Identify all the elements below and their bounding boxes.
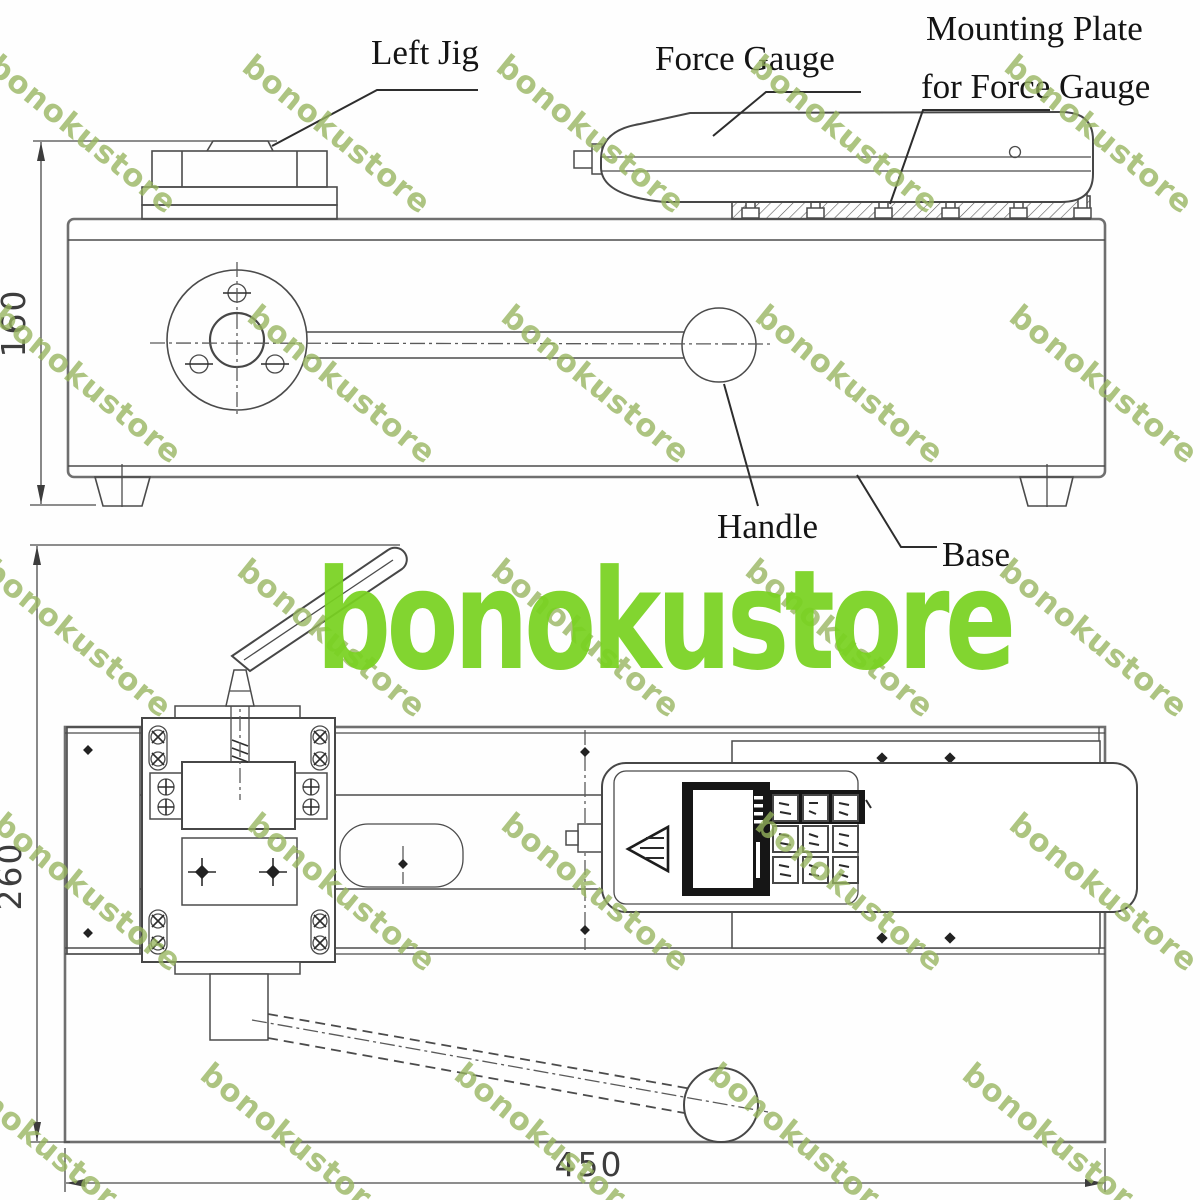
dimension-height-value: 160 <box>0 289 33 358</box>
plan-view: 260 450 <box>0 545 1137 1192</box>
force-gauge-side <box>574 112 1093 202</box>
carriage-lower-plate <box>182 838 297 905</box>
handle-ball-plan <box>684 1068 758 1142</box>
side-view: 160 Left Jig Force Gauge Mounting Plate … <box>0 9 1150 574</box>
callout-mounting-plate-line2: for Force Gauge <box>921 67 1150 106</box>
callout-mounting-plate-line1: Mounting Plate <box>926 9 1143 48</box>
handle-ball-side <box>682 308 756 382</box>
product-diagram: 160 Left Jig Force Gauge Mounting Plate … <box>0 0 1200 1200</box>
left-jig <box>142 141 337 219</box>
handle-lever-hidden <box>252 1014 768 1142</box>
dimension-length: 450 <box>65 1145 1105 1192</box>
gauge-display <box>682 782 770 896</box>
gauge-probe-shaft-plan <box>578 824 604 852</box>
gauge-keypad <box>769 790 871 883</box>
screw-marker <box>79 924 97 942</box>
foot-right <box>1020 464 1073 507</box>
callout-handle: Handle <box>717 507 818 546</box>
callout-force-gauge: Force Gauge <box>655 39 835 78</box>
dimension-height: 160 <box>0 141 277 505</box>
foot-left <box>95 464 150 507</box>
force-gauge-plan <box>566 763 1137 912</box>
screw-marker <box>79 741 97 759</box>
track-slot <box>340 824 463 887</box>
gauge-probe-shaft <box>574 151 594 168</box>
callout-base: Base <box>942 535 1010 574</box>
dimension-length-value: 450 <box>555 1145 624 1184</box>
technical-drawing: 160 Left Jig Force Gauge Mounting Plate … <box>0 0 1200 1200</box>
callouts-side: Left Jig Force Gauge Mounting Plate for … <box>272 9 1150 574</box>
handle-mechanism-side <box>150 262 772 418</box>
handle-lever <box>226 548 407 706</box>
dimension-depth-value: 260 <box>0 842 29 911</box>
callout-left-jig: Left Jig <box>371 33 479 72</box>
rail-end-plate <box>67 727 140 954</box>
